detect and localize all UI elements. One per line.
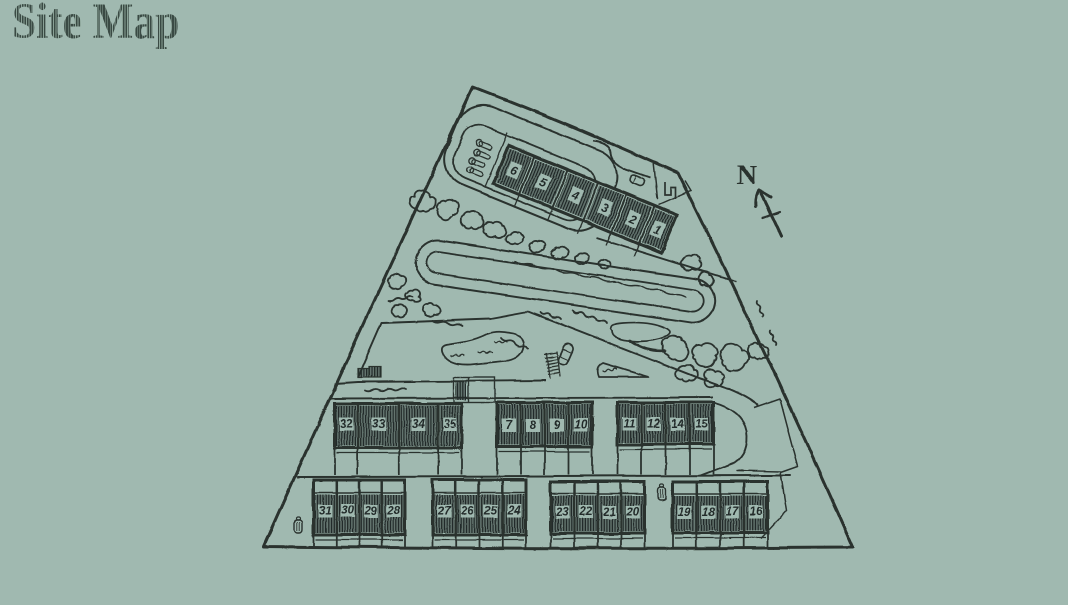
svg-text:29: 29 — [362, 505, 376, 517]
svg-text:28: 28 — [385, 505, 399, 517]
svg-text:35: 35 — [443, 418, 456, 430]
svg-text:9: 9 — [553, 419, 560, 431]
svg-text:N: N — [736, 160, 756, 191]
svg-text:8: 8 — [529, 419, 536, 431]
svg-text:27: 27 — [436, 505, 450, 517]
svg-text:30: 30 — [341, 505, 354, 517]
svg-text:26: 26 — [459, 505, 473, 517]
svg-text:20: 20 — [625, 506, 639, 518]
svg-text:12: 12 — [647, 418, 660, 430]
svg-text:23: 23 — [554, 506, 568, 518]
svg-text:16: 16 — [749, 506, 762, 518]
svg-text:18: 18 — [701, 506, 714, 518]
svg-text:25: 25 — [483, 505, 497, 517]
svg-text:14: 14 — [671, 418, 684, 430]
svg-text:10: 10 — [574, 419, 587, 431]
svg-text:34: 34 — [412, 418, 425, 430]
svg-text:11: 11 — [623, 418, 635, 430]
svg-text:7: 7 — [505, 419, 512, 431]
svg-text:22: 22 — [578, 506, 592, 518]
svg-text:17: 17 — [725, 506, 738, 518]
svg-text:15: 15 — [695, 418, 708, 430]
svg-text:32: 32 — [339, 418, 352, 430]
svg-text:21: 21 — [601, 506, 615, 518]
svg-text:24: 24 — [506, 505, 520, 517]
svg-text:31: 31 — [318, 505, 331, 517]
svg-text:19: 19 — [677, 506, 690, 518]
svg-text:33: 33 — [372, 418, 385, 430]
